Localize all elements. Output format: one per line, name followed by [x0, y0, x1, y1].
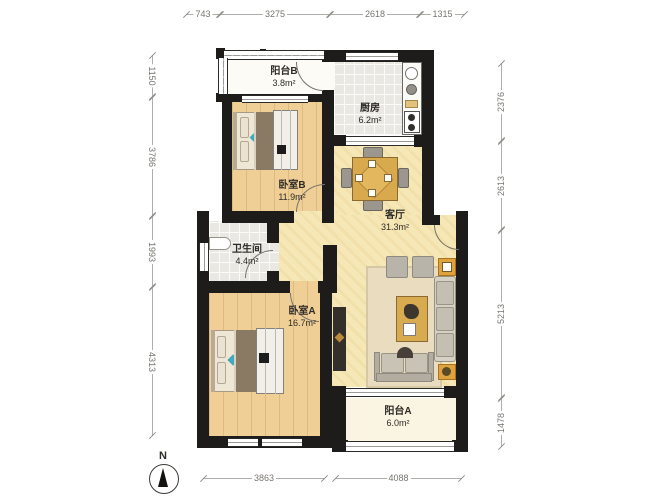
dim-label: 3863	[252, 473, 276, 483]
wall	[267, 211, 279, 243]
stove-burner	[408, 114, 415, 121]
dim-right-2376: 2376	[495, 63, 507, 141]
dim-right-2613: 2613	[495, 141, 507, 230]
dim-label: 3786	[147, 144, 157, 168]
bed-b-headboard	[233, 112, 237, 170]
room-name: 卧室B	[262, 180, 322, 192]
dim-label: 1478	[496, 410, 506, 434]
wall	[197, 287, 209, 446]
dim-label: 4088	[386, 473, 410, 483]
dim-tick	[498, 443, 505, 450]
dim-tick	[183, 11, 190, 18]
room-name: 卫生间	[217, 244, 277, 256]
wall	[324, 211, 334, 223]
armchair	[412, 256, 434, 278]
coffee-table-tray	[403, 323, 416, 336]
wall	[414, 135, 434, 147]
room-label-kitchen: 厨房 6.2m²	[340, 103, 400, 126]
dim-label: 1150	[147, 64, 157, 87]
dim-label: 2613	[496, 173, 506, 197]
window-bedroom-a-1	[228, 438, 258, 447]
dim-left-3786: 3786	[146, 97, 158, 216]
dim-tick	[332, 475, 339, 482]
kitchen-board	[405, 100, 418, 108]
wall	[197, 281, 290, 293]
wall	[452, 440, 468, 452]
kitchen-sink	[405, 67, 418, 80]
dim-tick	[321, 475, 328, 482]
room-label-living: 客厅 31.3m²	[365, 210, 425, 233]
floor-plan: 阳台B 3.8m² 厨房 6.2m² 卧室B 11.9m² 客厅 31.3m² …	[0, 0, 667, 500]
wardrobe-b	[273, 110, 298, 170]
dim-label: 3275	[263, 9, 287, 19]
dim-label: 2618	[363, 9, 387, 19]
plate	[384, 174, 392, 182]
dim-right-1478: 1478	[495, 398, 507, 447]
dim-tick	[149, 432, 156, 439]
room-name: 阳台A	[368, 406, 428, 418]
room-label-bathroom: 卫生间 4.4m²	[217, 244, 277, 267]
pillow	[217, 336, 226, 358]
wall	[222, 211, 294, 223]
wardrobe-b-line	[281, 110, 282, 170]
dim-bottom-3863: 3863	[203, 472, 325, 484]
room-area: 11.9m²	[262, 192, 322, 203]
plate	[368, 160, 376, 168]
north-arrow-icon	[158, 468, 168, 487]
kitchen-pot	[406, 84, 417, 95]
dim-label: 1993	[147, 239, 157, 263]
room-area: 6.0m²	[368, 418, 428, 429]
room-name: 客厅	[365, 210, 425, 222]
dim-tick	[149, 52, 156, 59]
room-area: 16.7m²	[272, 318, 332, 329]
north-label: N	[159, 450, 167, 462]
bed-a-blanket	[234, 330, 256, 392]
wardrobe-b-handle	[277, 145, 286, 154]
room-area: 6.2m²	[340, 115, 400, 126]
wall	[422, 50, 434, 215]
dim-tick	[498, 60, 505, 67]
dim-left-1150: 1150	[146, 55, 158, 97]
room-label-bedroom-b: 卧室B 11.9m²	[262, 180, 322, 203]
dim-right-5213: 5213	[495, 230, 507, 398]
plate	[355, 174, 363, 182]
dining-chair	[398, 168, 409, 188]
slider-living-balcony-a	[346, 388, 444, 397]
room-label-balcony-a: 阳台A 6.0m²	[368, 406, 428, 429]
dim-label: 1315	[430, 9, 454, 19]
armchair	[386, 256, 408, 278]
dim-top-3275: 3275	[220, 8, 330, 20]
wardrobe-a-handle	[259, 353, 269, 363]
stove-burner	[408, 124, 415, 131]
sofa-cushion	[436, 281, 454, 305]
dim-label: 5213	[496, 302, 506, 326]
bed-a-headboard	[211, 330, 215, 392]
dim-label: 743	[193, 9, 212, 19]
window-balcony-b-top	[224, 50, 324, 60]
dim-top-2618: 2618	[330, 8, 420, 20]
room-name: 卧室A	[272, 306, 332, 318]
window-kitchen	[346, 52, 398, 61]
window-bedroom-a-2	[262, 438, 302, 447]
sofa-cushion	[436, 333, 454, 357]
room-area: 4.4m²	[217, 256, 277, 267]
wall	[334, 135, 346, 146]
room-name: 厨房	[340, 103, 400, 115]
window-bedroom-b	[242, 95, 308, 103]
dim-label: 4313	[147, 349, 157, 373]
dim-bottom-4088: 4088	[335, 472, 462, 484]
plate	[368, 189, 376, 197]
dim-top-743: 743	[186, 8, 220, 20]
wardrobe-b-line	[290, 110, 291, 170]
room-area: 3.8m²	[254, 78, 314, 89]
loveseat-item	[397, 347, 413, 358]
dining-chair	[341, 168, 352, 188]
coffee-table-decor	[404, 304, 419, 319]
window-balcony-a-bottom	[346, 441, 454, 452]
pillow	[240, 117, 249, 138]
dim-tick	[200, 475, 207, 482]
room-area: 31.3m²	[365, 222, 425, 233]
dim-label: 2376	[496, 90, 506, 114]
wall	[222, 94, 232, 223]
pillow	[240, 141, 249, 162]
room-label-bedroom-a: 卧室A 16.7m²	[272, 306, 332, 329]
room-label-balcony-b: 阳台B 3.8m²	[254, 66, 314, 89]
sofa-cushion	[436, 307, 454, 331]
dim-tick	[458, 475, 465, 482]
slider-kitchen-living	[346, 136, 414, 146]
window-bathroom	[199, 243, 209, 271]
side-table-lamp	[442, 262, 452, 272]
bed-b-blanket	[254, 112, 273, 170]
side-table-lamp	[442, 367, 451, 376]
dim-top-1315: 1315	[420, 8, 465, 20]
wall	[320, 281, 332, 438]
loveseat-back	[376, 373, 432, 382]
dim-tick	[461, 11, 468, 18]
wall	[444, 386, 468, 398]
pillow	[217, 362, 226, 384]
dim-left-1993: 1993	[146, 216, 158, 287]
window-balcony-b-left	[218, 58, 228, 94]
room-name: 阳台B	[254, 66, 314, 78]
wardrobe-a-line	[275, 328, 276, 394]
dim-left-4313: 4313	[146, 287, 158, 436]
